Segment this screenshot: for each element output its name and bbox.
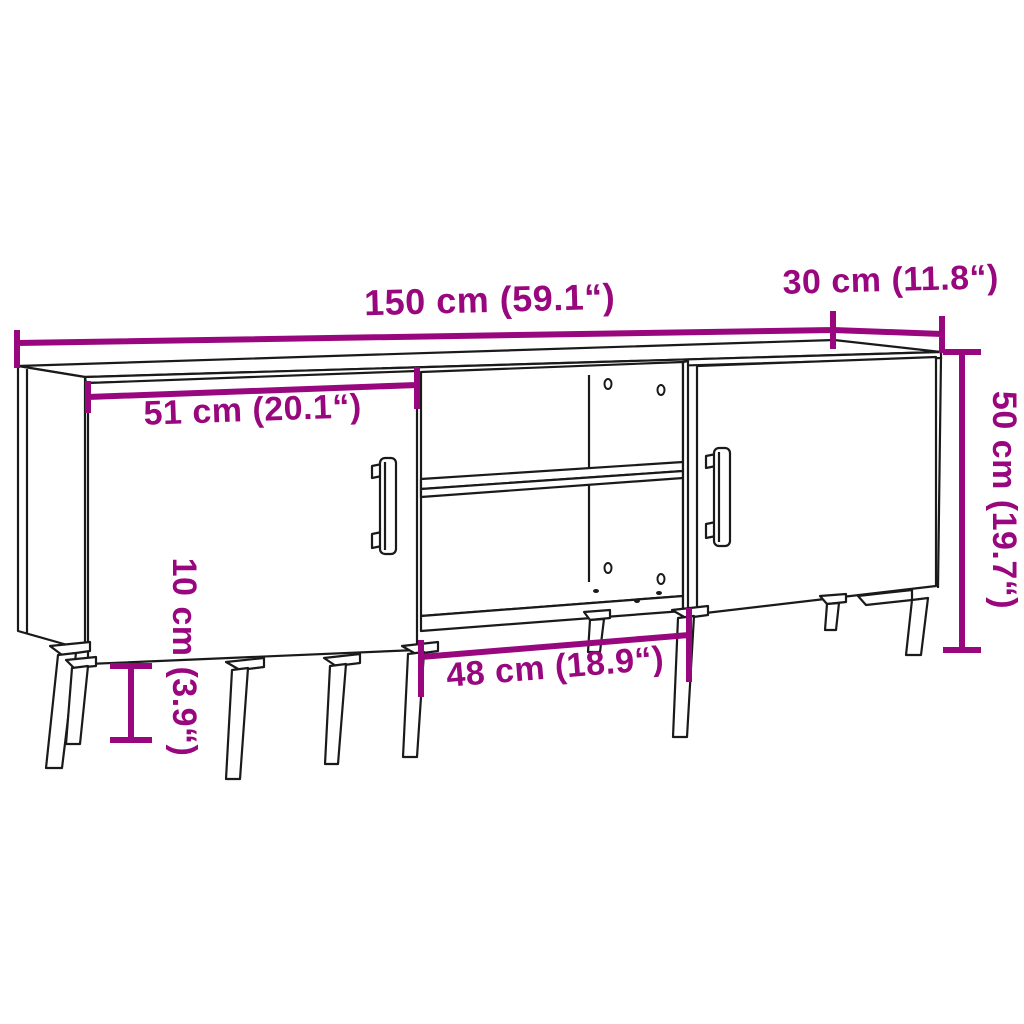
dimension-height-label: 50 cm (19.7“) <box>985 391 1023 609</box>
dimension-height-line <box>943 352 981 650</box>
dimension-height: 50 cm (19.7“) <box>943 352 1023 650</box>
right-door-panel <box>697 357 936 614</box>
dimension-width-label: 150 cm (59.1“) <box>364 276 616 324</box>
back-panel-hole <box>605 379 612 389</box>
back-panel-hole <box>658 574 665 584</box>
furniture-dimension-diagram: 150 cm (59.1“) 30 cm (11.8“) 50 cm (19.7… <box>0 0 1024 1024</box>
leg-rear-right <box>820 594 846 630</box>
floor-dowel-hole <box>656 591 662 595</box>
dimension-leg-height-label: 10 cm (3.9“) <box>165 558 203 757</box>
diagram-stage: 150 cm (59.1“) 30 cm (11.8“) 50 cm (19.7… <box>0 0 1024 1024</box>
back-panel-hole <box>658 385 665 395</box>
back-panel-hole <box>605 563 612 573</box>
handle-bar <box>380 458 396 554</box>
dimension-depth-label: 30 cm (11.8“) <box>782 258 999 302</box>
divider-panel <box>683 361 688 611</box>
leg-front <box>226 658 264 779</box>
leg-front <box>324 654 360 764</box>
dimension-leg-height-line <box>110 666 152 740</box>
carcass-right-edge <box>938 357 941 588</box>
dimension-compartment-width-label: 48 cm (18.9“) <box>445 639 666 694</box>
handle-bar <box>714 448 730 546</box>
dimension-door-width-label: 51 cm (20.1“) <box>143 387 362 433</box>
floor-dowel-hole <box>634 599 640 603</box>
leg-front-right <box>858 590 928 655</box>
dimension-depth: 30 cm (11.8“) <box>782 258 999 353</box>
right-door <box>697 357 936 614</box>
floor-dowel-hole <box>593 589 599 593</box>
